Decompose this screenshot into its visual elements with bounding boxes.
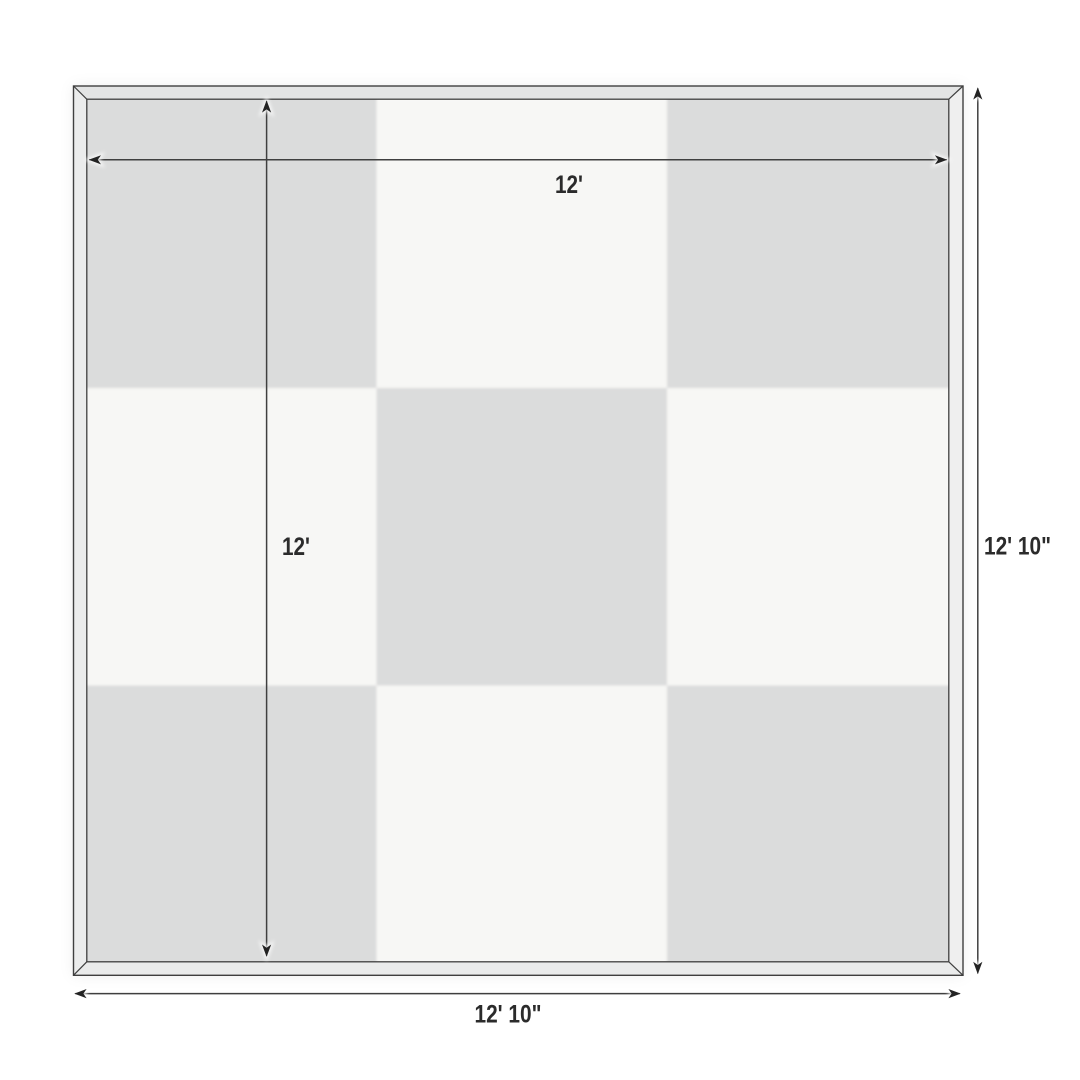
svg-text:12' 10": 12' 10" (475, 1001, 542, 1029)
svg-text:12': 12' (555, 171, 583, 199)
svg-text:12' 10": 12' 10" (984, 533, 1051, 561)
svg-text:12': 12' (282, 533, 310, 561)
